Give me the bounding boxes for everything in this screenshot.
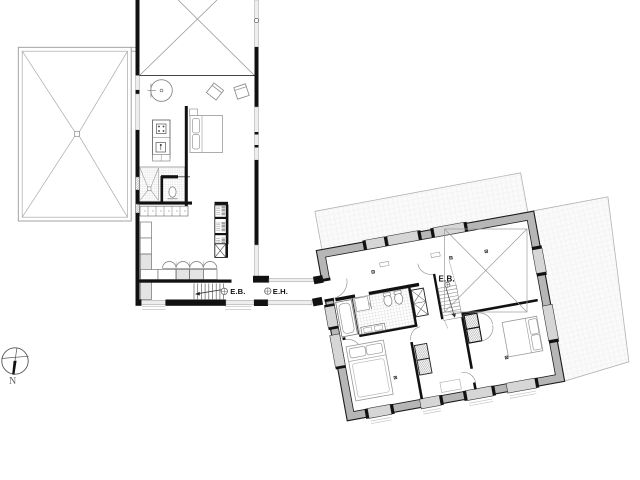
svg-text:N: N [9, 376, 16, 387]
svg-text:E.B.: E.B. [230, 287, 245, 296]
svg-text:E.H.: E.H. [273, 287, 288, 296]
svg-text:E.B.: E.B. [439, 275, 455, 284]
